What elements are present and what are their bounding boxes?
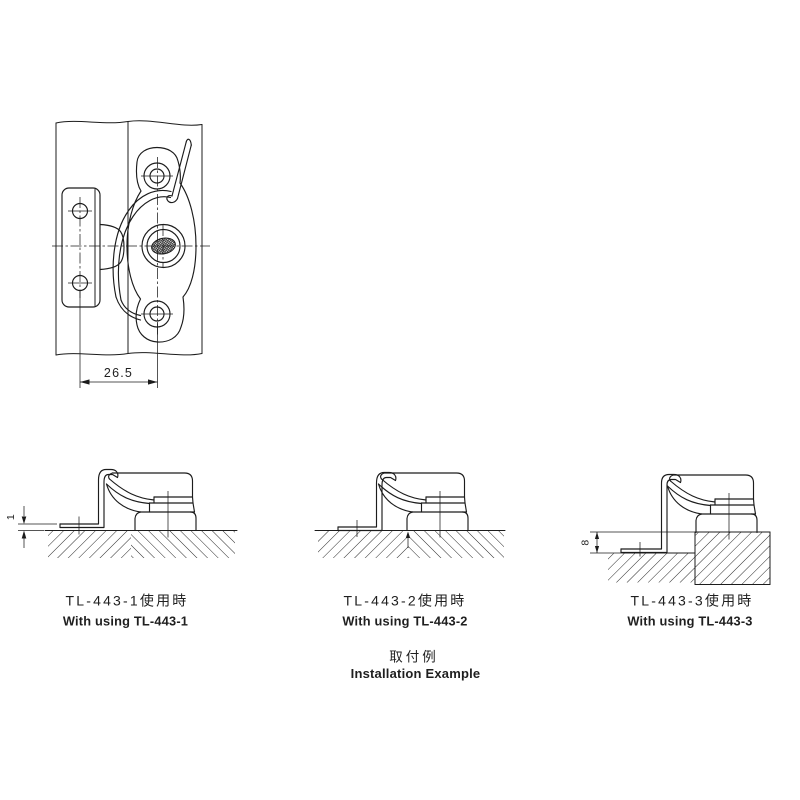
lock-cross-section-body	[107, 473, 197, 538]
hatch-lower-frame	[608, 554, 695, 583]
hatch-sash-right	[408, 531, 504, 558]
dimension-8: 8	[580, 532, 600, 553]
window-frame-panels	[56, 121, 202, 355]
section-tl-443-2: TL-443-2使用時 With using TL-443-2	[315, 473, 505, 629]
hatch-raised-block	[696, 533, 770, 585]
lock-cross-section-body	[668, 475, 758, 540]
lever-handle	[167, 139, 191, 202]
section3-title-ja: TL-443-3使用時	[630, 593, 753, 609]
hatch-sash-right	[131, 531, 235, 558]
drawing-canvas: 26.5 1 TL-443-1使用時 With using TL-443-1	[0, 0, 800, 800]
section1-title-ja: TL-443-1使用時	[65, 593, 188, 609]
technical-drawing-page: 26.5 1 TL-443-1使用時 With using TL-443-1	[0, 0, 800, 800]
section1-title-en: With using TL-443-1	[63, 614, 188, 629]
crescent-cam-arcs	[113, 190, 171, 320]
center-lines	[52, 157, 210, 337]
footer-caption: 取付例 Installation Example	[351, 650, 481, 682]
main-drawing: 26.5	[52, 121, 210, 388]
section-tl-443-1: 1 TL-443-1使用時 With using TL-443-1	[5, 470, 237, 629]
dimension-label-26-5: 26.5	[104, 366, 133, 380]
footer-title-en: Installation Example	[351, 666, 481, 681]
lock-cross-section-body	[379, 473, 469, 538]
section2-title-ja: TL-443-2使用時	[343, 593, 466, 609]
dimension-label-8: 8	[580, 539, 592, 545]
section3-title-en: With using TL-443-3	[627, 614, 752, 629]
dimension-label-1: 1	[5, 514, 17, 520]
dimension-26-5: 26.5	[80, 290, 158, 388]
section2-title-en: With using TL-443-2	[342, 614, 467, 629]
hatch-frame-left	[318, 531, 408, 558]
section-tl-443-3: 8 TL-443-3使用時 With using TL-443-3	[580, 475, 771, 629]
hatch-frame-left	[48, 531, 131, 558]
keeper-cross-section	[621, 475, 681, 553]
keeper-cross-section	[338, 473, 396, 531]
footer-title-ja: 取付例	[389, 650, 439, 665]
